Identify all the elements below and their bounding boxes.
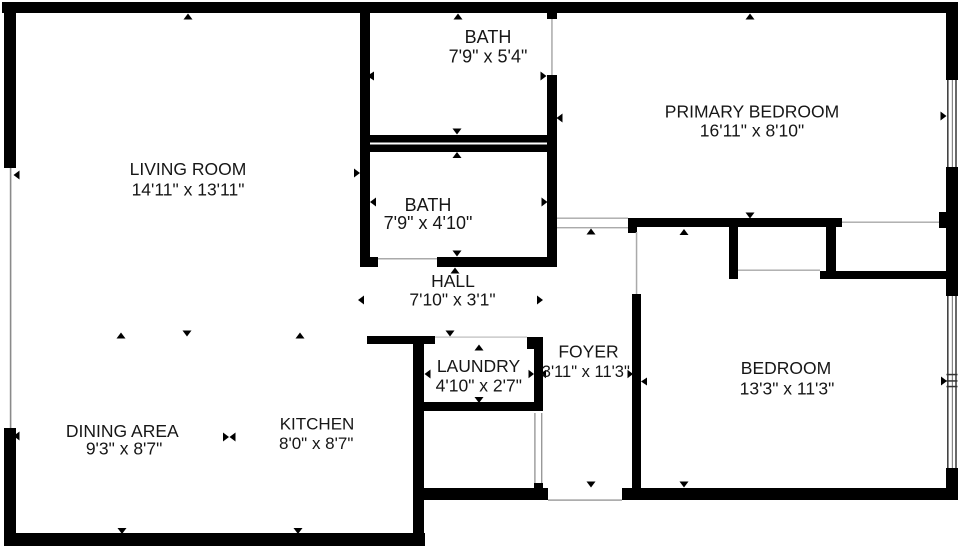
svg-text:LIVING ROOM: LIVING ROOM [130,159,247,179]
svg-text:7'9" x 4'10": 7'9" x 4'10" [384,213,473,233]
svg-text:8'0" x 8'7": 8'0" x 8'7" [279,434,353,453]
svg-text:9'3" x 8'7": 9'3" x 8'7" [86,439,163,459]
svg-text:PRIMARY BEDROOM: PRIMARY BEDROOM [665,102,839,122]
svg-text:KITCHEN: KITCHEN [280,415,355,434]
svg-text:3'11" x 11'3": 3'11" x 11'3" [542,363,630,381]
svg-text:7'10" x 3'1": 7'10" x 3'1" [409,290,495,310]
svg-text:4'10" x 2'7": 4'10" x 2'7" [436,376,522,396]
svg-text:HALL: HALL [431,271,475,291]
svg-text:BATH: BATH [465,27,512,47]
svg-text:7'9" x 5'4": 7'9" x 5'4" [449,47,528,67]
svg-text:BEDROOM: BEDROOM [741,358,831,378]
svg-text:16'11" x 8'10": 16'11" x 8'10" [700,121,804,141]
svg-text:13'3" x 11'3": 13'3" x 11'3" [740,379,835,399]
svg-text:LAUNDRY: LAUNDRY [437,356,521,376]
svg-text:FOYER: FOYER [558,342,618,362]
svg-text:14'11" x 13'11": 14'11" x 13'11" [132,180,245,200]
svg-text:BATH: BATH [405,195,452,215]
